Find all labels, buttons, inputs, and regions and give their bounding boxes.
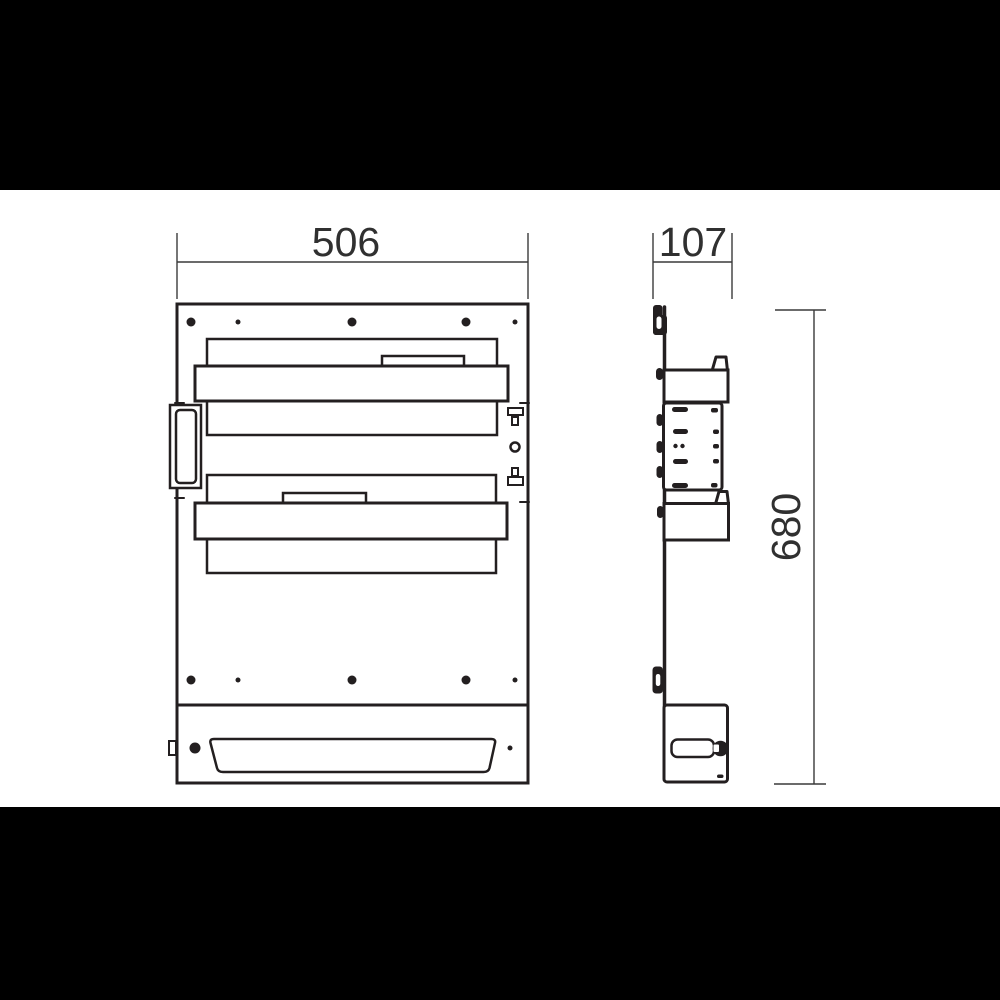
- side-box-1-body: [664, 370, 728, 402]
- dimension-front-width: 506: [177, 219, 528, 299]
- base-knob-left: [190, 743, 201, 754]
- terminal-block-left-bumps: [657, 414, 664, 478]
- side-box-1-bump: [656, 368, 663, 380]
- base-scoop-tray: [210, 739, 495, 772]
- handle-inner: [176, 410, 196, 483]
- dim-680-label: 680: [763, 493, 809, 561]
- base-dot-right: [508, 746, 513, 751]
- foot-slot: [672, 740, 715, 758]
- tray1-lower-body: [207, 401, 497, 435]
- side-box-1: [656, 357, 728, 402]
- foot-knob-notch: [714, 745, 720, 753]
- side-box-2-bump: [657, 506, 664, 518]
- terminal-block: [657, 403, 723, 490]
- base-section: [169, 705, 528, 783]
- dim-506-label: 506: [312, 219, 380, 265]
- foot-bracket: [664, 705, 728, 782]
- drawing-canvas: 506 107 680: [0, 0, 1000, 1000]
- small-square-bottom: [512, 468, 518, 476]
- switch-slot-bottom: [508, 477, 523, 485]
- left-handle: [170, 405, 201, 488]
- tray2-lower-body: [207, 539, 496, 573]
- side-box-2: [657, 492, 729, 541]
- tray1-front-bar: [195, 366, 508, 401]
- tray-unit-1: [195, 339, 508, 435]
- lock-hole: [511, 443, 520, 452]
- dim-107-label: 107: [659, 219, 727, 265]
- bottom-mount-clip: [653, 667, 664, 694]
- dimension-height: 680: [763, 310, 826, 784]
- side-box-2-body: [664, 504, 729, 541]
- tray-unit-2: [195, 475, 507, 573]
- tray2-front-bar: [195, 503, 507, 539]
- small-square-top: [512, 417, 518, 425]
- foot-corner-mark: [717, 775, 724, 779]
- letterbox-bottom-bar: [0, 807, 1000, 1000]
- letterbox-top-bar: [0, 0, 1000, 190]
- base-left-tab: [169, 741, 176, 755]
- dimension-side-depth: 107: [653, 219, 732, 299]
- switch-slot-top: [508, 408, 523, 415]
- side-view: [653, 305, 729, 782]
- front-view: [169, 304, 529, 783]
